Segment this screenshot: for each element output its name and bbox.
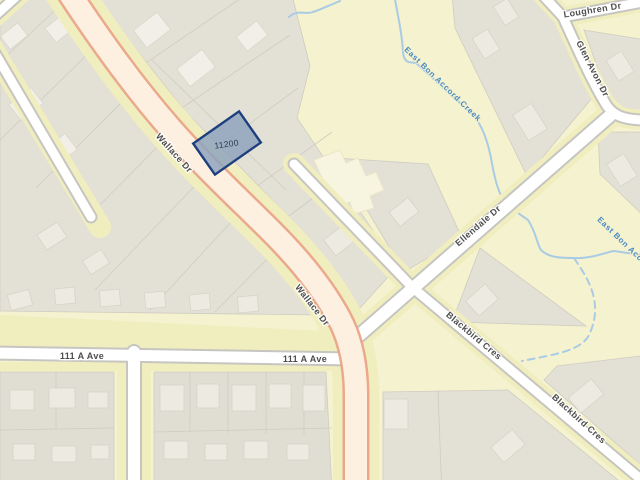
road-label-111a-ave-1: 111 A Ave bbox=[60, 351, 104, 361]
building-footprint bbox=[13, 444, 35, 460]
building-footprint bbox=[160, 385, 184, 411]
building-footprint bbox=[189, 293, 210, 311]
building-footprint bbox=[88, 392, 108, 408]
building-footprint bbox=[303, 385, 325, 411]
building-footprint bbox=[384, 399, 408, 429]
map-svg: 11200 Wallace Dr Wallace Dr 111 A Ave 11… bbox=[0, 0, 640, 480]
building-footprint bbox=[197, 384, 219, 408]
road-label-111a-ave-2: 111 A Ave bbox=[283, 354, 327, 364]
building-footprint bbox=[91, 445, 109, 459]
building-footprint bbox=[10, 390, 34, 410]
building-footprint bbox=[232, 385, 256, 411]
building-footprint bbox=[52, 446, 76, 462]
building-footprint bbox=[164, 441, 188, 459]
parcel-block bbox=[452, 248, 586, 326]
building-footprint bbox=[144, 291, 165, 309]
building-footprint bbox=[54, 287, 75, 305]
building-footprint bbox=[237, 295, 258, 313]
building-footprint bbox=[49, 388, 75, 408]
building-footprint bbox=[269, 384, 291, 408]
map-canvas[interactable]: 11200 Wallace Dr Wallace Dr 111 A Ave 11… bbox=[0, 0, 640, 480]
building-footprint bbox=[244, 441, 268, 459]
building-footprint bbox=[99, 289, 120, 307]
road-margin-111a bbox=[0, 315, 352, 352]
building-footprint bbox=[287, 444, 309, 460]
building-footprint bbox=[205, 444, 227, 460]
